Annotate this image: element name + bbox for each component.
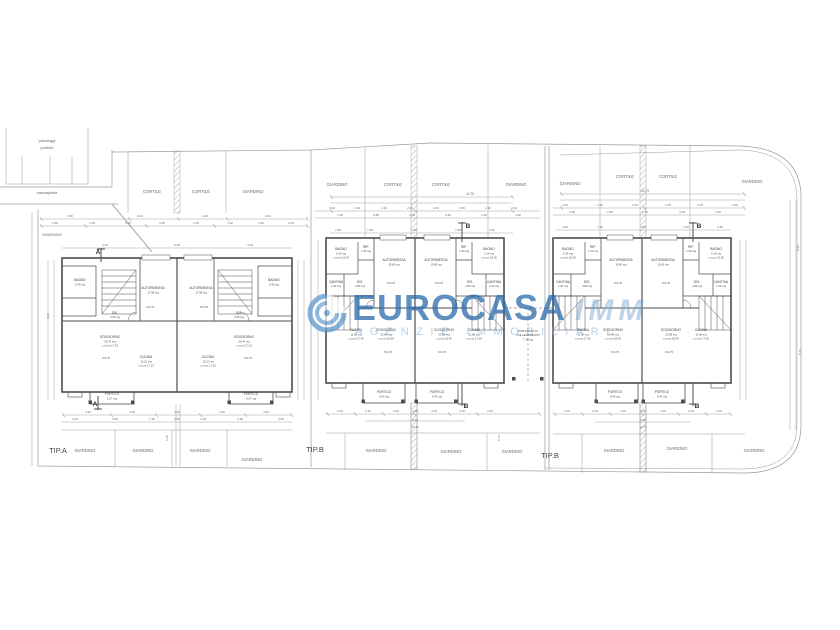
room-label: RIP. — [363, 245, 369, 249]
room-label: BAGNO — [562, 247, 574, 251]
dimension-label: 1.40 — [258, 221, 264, 225]
room-label: CUCINA — [140, 355, 153, 359]
room-label: PORTICO — [655, 390, 670, 394]
building-b — [326, 222, 504, 406]
dimension-label: 4.20 — [219, 410, 225, 414]
dimension-label: 1.30 — [642, 210, 648, 214]
room-area-label: h=2.70 — [665, 350, 674, 354]
room-area-label: 1.30 mq — [361, 249, 371, 253]
room-area-label: h=2.70 — [435, 281, 444, 285]
room-area-label: c.m.un 17.00 — [693, 337, 709, 341]
site-area-label: parcheggi — [39, 139, 56, 143]
site-area-label: GIARDINO — [502, 449, 523, 454]
room-area-label: h=2.70 — [244, 356, 253, 360]
dimension-label: 1.35 — [149, 417, 155, 421]
dimension-label: 2.40 — [716, 409, 722, 413]
room-area-label: 23.88 mq — [438, 333, 450, 337]
site-area-label: CORTILE — [192, 189, 210, 194]
room-area-label: h=2.70 — [102, 356, 111, 360]
room-area-label: 15.60 mq — [388, 263, 400, 267]
dimension-label: 5.45 — [316, 309, 320, 315]
room-area-label: 7.18 mq — [523, 337, 533, 341]
room-area-label: 12.10 mq — [140, 360, 152, 364]
garage-door — [142, 255, 170, 260]
room-area-label: 1.62 mq — [331, 284, 341, 288]
dimension-label: 3.20 — [445, 213, 451, 217]
dimension-label: 4.80 — [67, 214, 73, 218]
dimension-label: 5.18 — [165, 435, 169, 441]
dimension-label: 1.35 — [640, 409, 646, 413]
room-label: RIP. — [590, 245, 596, 249]
room-label: SOGGIORNO — [434, 328, 455, 332]
room-area-label: 5.14 mq — [711, 252, 721, 256]
dimension-label: 14.75 — [411, 425, 419, 429]
dimension-label: 2.40 — [193, 221, 199, 225]
room-area-label: h=2.70 — [438, 350, 447, 354]
room-area-label: c.m.un 17.00 — [348, 337, 364, 341]
site-area-label: CORTILE — [384, 182, 402, 187]
dimension-label: 4.20 — [431, 409, 437, 413]
dimension-label: 1.50 — [455, 228, 461, 232]
room-area-label: h=2.70 — [662, 281, 671, 285]
portico-columns — [362, 400, 458, 404]
room-label: SOGGIORNO — [603, 328, 624, 332]
site-plan-drawing: parcheggipubblicimarciapiedeGIARDINOCORT… — [0, 0, 840, 630]
room-area-label: 4.80 mq — [692, 284, 702, 288]
stairs-a-left — [102, 270, 136, 314]
room-area-label: 12.10 mq — [202, 360, 214, 364]
dimension-label: 1.50 — [683, 225, 689, 229]
dimension-label: 9.35 — [412, 418, 418, 422]
room-area-label: 15.60 mq — [430, 263, 442, 267]
room-area-label: c.m.un 18.00 — [378, 337, 394, 341]
site-area-label: GIARDINO — [560, 181, 581, 186]
room-area-label: c.m.un 18.00 — [436, 337, 452, 341]
room-area-label: 17.98 mq — [147, 291, 159, 295]
room-label: AUTORIMESSA — [424, 258, 448, 262]
room-area-label: c.m.un 18.00 — [605, 337, 621, 341]
site-area-label: GIARDINO — [75, 448, 96, 453]
site-area-label: GIARDINO — [604, 448, 625, 453]
room-area-label: c.m.un 17.23 — [236, 344, 252, 348]
room-area-label: h=2.70 — [614, 281, 623, 285]
room-area-label: h=2.70 — [611, 350, 620, 354]
dimension-label: 1.90 — [569, 210, 575, 214]
room-area-label: c.m.un 15.05 — [333, 256, 349, 260]
dimension-label: 1.30 — [354, 206, 360, 210]
room-label: SOGGIORNO — [100, 335, 121, 339]
garage-door — [607, 235, 633, 240]
room-area-label: 3.96 mq — [234, 315, 244, 319]
dimension-label: 4.10 — [597, 203, 603, 207]
garage-door — [184, 255, 212, 260]
dimension-label: 4.35 — [237, 417, 243, 421]
dimension-label: 2.56 — [335, 228, 341, 232]
section-marker: B — [697, 223, 702, 230]
room-label: RIP. — [461, 245, 467, 249]
dimension-label: 3.90 — [174, 410, 180, 414]
dimension-label: 3.30 — [511, 206, 517, 210]
dimension-label: 5.90 — [796, 245, 800, 251]
room-area-label: 5.40 mq — [269, 283, 279, 287]
room-area-label: 11.80 mq — [695, 333, 707, 337]
dimension-label: 3.45 — [459, 206, 465, 210]
site-area-label: GIARDINO — [327, 182, 348, 187]
room-area-label: h=2.70 — [384, 350, 393, 354]
room-area-label: 20.47 mq — [104, 340, 116, 344]
room-area-label: 5.14 mq — [563, 252, 573, 256]
dimension-label: 4.20 — [393, 409, 399, 413]
dimension-label: 4.50 — [85, 410, 91, 414]
site-boundary — [0, 128, 801, 473]
dimension-label: 9.30 — [46, 313, 50, 319]
room-area-label: 11.80 mq — [577, 333, 589, 337]
site-area-label: GIARDINO — [441, 449, 462, 454]
dimension-label: 1.35 — [200, 417, 206, 421]
dimension-label: 4.40 — [202, 214, 208, 218]
porticato-collegamento — [504, 308, 553, 383]
room-area-label: 15.60 mq — [657, 263, 669, 267]
stairs-c-right — [699, 296, 731, 330]
room-area-label: 1.30 mq — [459, 249, 469, 253]
dimension-label: 2.40 — [337, 409, 343, 413]
room-area-label: 3.96 mq — [110, 315, 120, 319]
dimension-label: 1.60 — [665, 203, 671, 207]
room-area-label: 5.14 mq — [484, 252, 494, 256]
room-label: AUTORIMESSA — [189, 286, 213, 290]
room-label: PORTICO — [244, 392, 259, 396]
room-label: CUCINA — [577, 328, 590, 332]
room-area-label: 1.62 mq — [716, 284, 726, 288]
dimension-label: 9.35 — [640, 418, 646, 422]
room-label: DIS. — [694, 280, 700, 284]
door-swing-arc — [128, 312, 249, 321]
dimension-label: 5.73 — [497, 435, 501, 441]
room-label: PORTICO — [608, 390, 623, 394]
room-label: CUCINA — [202, 355, 215, 359]
dimension-label: 2.40 — [564, 409, 570, 413]
site-area-label: CORTILE — [432, 182, 450, 187]
room-area-label: 17.98 mq — [195, 291, 207, 295]
dimension-label: 1.90 — [227, 221, 233, 225]
room-label: DIS. — [112, 311, 118, 315]
dimension-label: 4.50 — [112, 417, 118, 421]
room-label: SOGGIORNO — [661, 328, 682, 332]
room-label: AUTORIMESSA — [382, 258, 406, 262]
site-area-label: GIARDINO — [243, 189, 264, 194]
room-label: DIS. — [236, 311, 242, 315]
site-area-label: GIARDINO — [133, 448, 154, 453]
dimension-label: 14.75 — [641, 189, 649, 193]
dimension-label: 3.50 — [278, 417, 284, 421]
dimension-label: 4.20 — [660, 409, 666, 413]
room-label: BAGNO — [710, 247, 722, 251]
dimension-label: 1.30 — [409, 213, 415, 217]
dimension-label: 2.56 — [489, 228, 495, 232]
room-area-label: 8.43 mq — [657, 395, 667, 399]
room-area-label: 1.62 mq — [489, 284, 499, 288]
dimension-label: 3.30 — [732, 203, 738, 207]
room-area-label: 1.62 mq — [558, 284, 568, 288]
dimension-label: 4.20 — [620, 409, 626, 413]
stairs-c-left — [553, 296, 585, 330]
dimension-label: 4.50 — [640, 225, 646, 229]
floor-plan-canvas: parcheggipubblicimarciapiedeGIARDINOCORT… — [0, 0, 840, 630]
stairs-b-left — [326, 296, 358, 330]
room-label: SOGGIORNO — [376, 328, 397, 332]
dimension-label: 4.20 — [129, 410, 135, 414]
dimension-label: 4.19 — [137, 214, 143, 218]
dimension-label: 1.90 — [485, 206, 491, 210]
room-label: CUCINA — [695, 328, 708, 332]
building-c — [553, 222, 731, 406]
dimension-label: 5.74 — [798, 349, 802, 355]
room-label: CUCINA — [468, 328, 481, 332]
dimension-label: 3.10 — [592, 409, 598, 413]
dimension-label: 14.75 — [466, 192, 474, 196]
dimension-label: 14.75 — [639, 425, 647, 429]
dimension-label: 1.50 — [367, 228, 373, 232]
dimension-label: 4.50 — [263, 410, 269, 414]
dimension-label: 3.15 — [125, 221, 131, 225]
room-area-label: 15.60 mq — [615, 263, 627, 267]
dimension-label: 4.10 — [381, 206, 387, 210]
section-marker: B — [466, 223, 471, 230]
room-area-label: c.m.un 17.00 — [466, 337, 482, 341]
room-area-label: 4.80 mq — [465, 284, 475, 288]
labels-layer: parcheggipubblicimarciapiedeGIARDINOCORT… — [37, 139, 802, 462]
dimension-label: 2.55 — [288, 221, 294, 225]
site-area-label: GIARDINO — [506, 182, 527, 187]
room-area-label: 23.88 mq — [665, 333, 677, 337]
stairs-b-right — [472, 296, 504, 330]
room-area-label: 1.30 mq — [686, 249, 696, 253]
dimension-label: 1.40 — [481, 213, 487, 217]
type-label: TIP.B — [306, 445, 324, 454]
dimension-label: 0.45 — [159, 221, 165, 225]
dimension-label: 3.30 — [72, 417, 78, 421]
room-label: PORTICO — [377, 390, 392, 394]
room-area-label: 5.40 mq — [75, 283, 85, 287]
type-label: TIP.B — [541, 451, 559, 460]
portico-columns — [89, 401, 274, 405]
room-area-label: 11.80 mq — [350, 333, 362, 337]
site-area-label: GIARDINO — [366, 448, 387, 453]
dimension-label: 2.40 — [487, 409, 493, 413]
dimension-label: 2.56 — [562, 225, 568, 229]
room-area-label: c.m.un 18.00 — [663, 337, 679, 341]
room-label: BAGNO — [483, 247, 495, 251]
room-area-label: 11.80 mq — [468, 333, 480, 337]
dimension-label: 3.10 — [688, 409, 694, 413]
site-area-label: GIARDINO — [667, 446, 688, 451]
site-area-label: GIARDINO — [242, 457, 263, 462]
site-area-label: GIARDINO — [744, 448, 765, 453]
room-label: BAGNO — [268, 278, 280, 282]
room-area-label: 20.47 mq — [238, 340, 250, 344]
room-area-label: c.m.un 15.05 — [481, 256, 497, 260]
room-label: COLLEGAMENTO — [516, 333, 540, 337]
dimension-label: 3.10 — [365, 409, 371, 413]
dimension-label: 1.50 — [89, 221, 95, 225]
dimension-label: 1.50 — [597, 225, 603, 229]
room-label: PORTICO — [105, 392, 120, 396]
room-label: PORTICO — [430, 390, 445, 394]
room-label: CANTINA — [329, 280, 344, 284]
room-label: DIS. — [357, 280, 363, 284]
room-label: BAGNO — [335, 247, 347, 251]
dimension-label: 3.30 — [329, 206, 335, 210]
dimension-label: 1.60 — [433, 206, 439, 210]
dimension-label: 2.30 — [407, 206, 413, 210]
room-label: DIS. — [584, 280, 590, 284]
section-marker: A — [96, 249, 101, 256]
room-area-label: c.m.un 15.05 — [560, 256, 576, 260]
site-area-label: marciapiede — [37, 191, 58, 195]
room-area-label: 23.88 mq — [380, 333, 392, 337]
room-label: AUTORIMESSA — [609, 258, 633, 262]
room-label: CANTINA — [487, 280, 502, 284]
dimension-label: 4.60 — [265, 214, 271, 218]
room-label: CUCINA — [350, 328, 363, 332]
dimension-label: 1.90 — [337, 213, 343, 217]
room-area-label: 8.43 mq — [379, 395, 389, 399]
section-marker: B — [695, 403, 700, 410]
room-area-label: 8.43 mq — [610, 395, 620, 399]
garage-door — [424, 235, 450, 240]
dimension-label: 4.19 — [102, 243, 108, 247]
room-area-label: 23.88 mq — [607, 333, 619, 337]
room-area-label: c.m.un 17.23 — [200, 364, 216, 368]
room-area-label: h=2.70 — [200, 305, 209, 309]
section-marker: B — [464, 403, 469, 410]
dimension-label: 2.56 — [52, 221, 58, 225]
dimension-label: 3.20 — [679, 210, 685, 214]
room-area-label: h=2.70 — [146, 305, 155, 309]
dimension-label: 2.85 — [607, 210, 613, 214]
room-area-label: c.m.un 17.23 — [138, 364, 154, 368]
dimension-label: 2.30 — [632, 203, 638, 207]
stairs-a-right — [218, 270, 252, 314]
dimension-label: 6.18 — [174, 243, 180, 247]
type-label: TIP.A — [49, 446, 67, 455]
room-area-label: 4.80 mq — [582, 284, 592, 288]
room-label: AUTORIMESSA — [141, 286, 165, 290]
dimension-label: 3.90 — [174, 417, 180, 421]
dimension-label: 1.35 — [412, 409, 418, 413]
section-marker: A — [93, 401, 98, 408]
room-area-label: 5.27 mq — [246, 397, 256, 401]
room-area-label: 8.43 mq — [432, 395, 442, 399]
site-area-label: CORTILE — [659, 174, 677, 179]
dimension-label: 4.50 — [411, 228, 417, 232]
building-a — [62, 248, 292, 410]
dimension-label: 4.19 — [247, 243, 253, 247]
dimension-label: 2.56 — [717, 225, 723, 229]
garage-door — [651, 235, 677, 240]
dimension-label: 1.90 — [515, 213, 521, 217]
room-label: SOGGIORNO — [234, 335, 255, 339]
room-label: CANTINA — [556, 280, 571, 284]
room-label: BAGNO — [74, 278, 86, 282]
site-area-label: CORTILE — [143, 189, 161, 194]
dimension-label: 3.30 — [562, 203, 568, 207]
room-label: RIP. — [688, 245, 694, 249]
site-area-label: GIARDINO — [42, 232, 62, 237]
dimension-label: 1.90 — [715, 210, 721, 214]
room-area-label: 1.30 mq — [588, 249, 598, 253]
room-area-label: c.m.un 17.23 — [102, 344, 118, 348]
portico-columns — [595, 400, 685, 404]
site-area-label: GIARDINO — [742, 179, 763, 184]
site-area-label: GIARDINO — [190, 448, 211, 453]
room-area-label: c.m.un 17.00 — [575, 337, 591, 341]
site-area-label: pubblici — [41, 146, 54, 150]
dimension-label: 3.45 — [697, 203, 703, 207]
garage-door — [380, 235, 406, 240]
room-area-label: 4.80 mq — [355, 284, 365, 288]
room-area-label: 5.14 mq — [336, 252, 346, 256]
dimension-label: 2.85 — [373, 213, 379, 217]
room-area-label: h=2.70 — [387, 281, 396, 285]
room-label: DIS. — [467, 280, 473, 284]
room-label: CANTINA — [714, 280, 729, 284]
room-area-label: c.m.un 15.05 — [708, 256, 724, 260]
room-label: AUTORIMESSA — [651, 258, 675, 262]
room-area-label: 5.27 mq — [107, 397, 117, 401]
site-area-label: CORTILE — [616, 174, 634, 179]
